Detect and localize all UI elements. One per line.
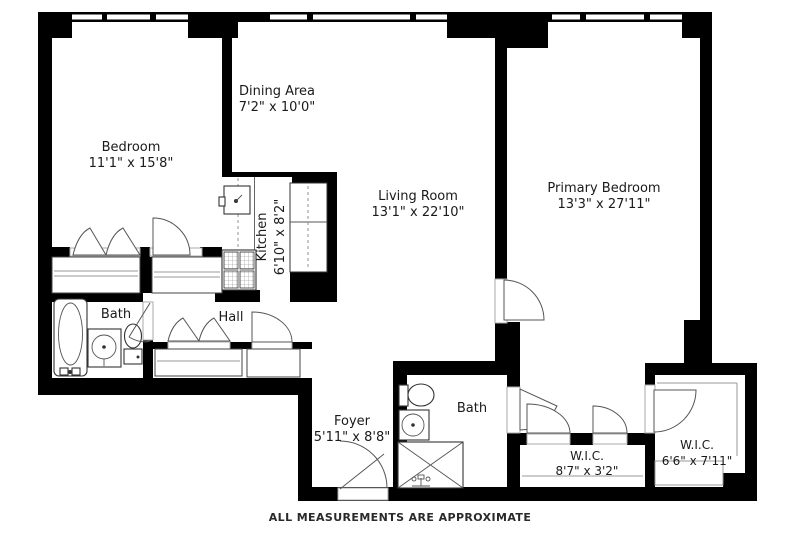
door-sill bbox=[527, 434, 570, 444]
stove-burner bbox=[240, 271, 254, 288]
window bbox=[72, 15, 102, 20]
foyer-label: Foyer bbox=[334, 414, 371, 429]
living-label: Living Room bbox=[378, 189, 458, 204]
wic-small-label: W.I.C. bbox=[570, 449, 604, 463]
living-dims: 13'1" x 22'10" bbox=[372, 205, 465, 220]
sink-drain bbox=[411, 423, 415, 427]
window bbox=[270, 15, 307, 20]
stove-burner bbox=[240, 252, 254, 269]
toilet-flush bbox=[137, 356, 140, 359]
toilet-tank bbox=[399, 385, 408, 406]
bath-left-label: Bath bbox=[101, 307, 131, 322]
window bbox=[552, 15, 580, 20]
bedroom-dims: 11'1" x 15'8" bbox=[89, 156, 174, 171]
window bbox=[107, 15, 150, 20]
toilet-bowl bbox=[408, 384, 434, 406]
kitchen-counter-right bbox=[290, 183, 327, 272]
hall-closet-b bbox=[247, 349, 300, 377]
door-sill bbox=[168, 342, 230, 349]
hall-label: Hall bbox=[219, 310, 244, 325]
stove-burner bbox=[224, 271, 238, 288]
bedroom-closet-bifold bbox=[73, 228, 106, 255]
kitchen-dims: 6'10" x 8'2" bbox=[273, 199, 288, 275]
tub-knob bbox=[68, 370, 72, 374]
floorplan-svg: Bedroom 11'1" x 15'8" Dining Area 7'2" x… bbox=[0, 0, 800, 533]
foyer-dims: 5'11" x 8'8" bbox=[314, 430, 390, 445]
wic-small-dims: 8'7" x 3'2" bbox=[556, 464, 619, 478]
disclaimer-text: ALL MEASUREMENTS ARE APPROXIMATE bbox=[269, 511, 532, 524]
primary-dims: 13'3" x 27'11" bbox=[558, 197, 651, 212]
primary-bedroom-door-arc bbox=[504, 280, 544, 320]
door-sill bbox=[252, 342, 292, 349]
door-sill bbox=[507, 387, 520, 433]
stove-burner bbox=[224, 252, 238, 269]
door-sill bbox=[593, 434, 627, 444]
sink-drain bbox=[102, 345, 106, 349]
bedroom-label: Bedroom bbox=[102, 140, 161, 155]
wic-small-door-arc bbox=[593, 406, 627, 433]
window-layer bbox=[72, 15, 682, 20]
window bbox=[156, 15, 188, 20]
kitchen-label: Kitchen bbox=[255, 213, 270, 262]
bedroom-door-arc bbox=[153, 218, 190, 255]
wic-large-door-arc bbox=[654, 390, 696, 432]
window bbox=[313, 15, 410, 20]
toilet-bowl bbox=[125, 324, 142, 348]
entry-threshold bbox=[338, 488, 388, 500]
wic-large-label: W.I.C. bbox=[680, 438, 714, 452]
hall-closet-door-arc bbox=[252, 312, 292, 342]
bedroom-closet-b bbox=[152, 257, 222, 293]
bedroom-closet-bifold bbox=[106, 228, 140, 255]
kitchen-sink-faucet bbox=[219, 197, 225, 206]
tub-faucet bbox=[60, 368, 68, 375]
window bbox=[586, 15, 644, 20]
window bbox=[650, 15, 682, 20]
floorplan-canvas: Bedroom 11'1" x 15'8" Dining Area 7'2" x… bbox=[0, 0, 800, 533]
hall-closet-a bbox=[155, 349, 242, 376]
entry-door-leaf bbox=[340, 454, 384, 489]
wic-large-dims: 6'6" x 7'11" bbox=[662, 454, 733, 468]
hall-closet-bifold bbox=[168, 318, 199, 341]
bath-main-fixtures bbox=[398, 384, 463, 488]
tub-faucet bbox=[72, 368, 80, 375]
bedroom-closet-a bbox=[52, 257, 140, 293]
primary-label: Primary Bedroom bbox=[547, 181, 660, 196]
dining-label: Dining Area bbox=[239, 84, 315, 99]
dining-dims: 7'2" x 10'0" bbox=[239, 100, 315, 115]
door-sill bbox=[143, 302, 153, 340]
bath-main-label: Bath bbox=[457, 401, 487, 416]
entry-door-arc bbox=[340, 441, 387, 488]
window bbox=[416, 15, 447, 20]
wic-small-door-arc bbox=[527, 404, 570, 433]
